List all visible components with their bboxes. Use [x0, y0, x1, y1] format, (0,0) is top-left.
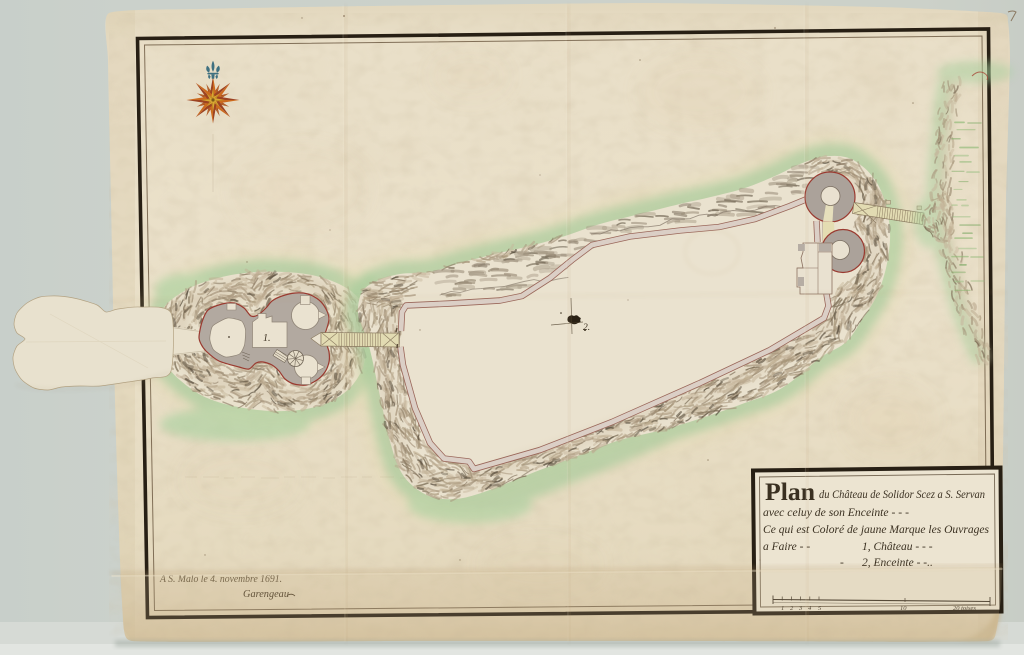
- svg-text:Ce qui est Coloré de jaune Mar: Ce qui est Coloré de jaune Marque les Ou…: [763, 524, 990, 536]
- svg-text:1, Château - - -: 1, Château - - -: [862, 541, 933, 553]
- svg-text:a Faire - -: a Faire - -: [763, 541, 810, 553]
- svg-text:du Château de Solidor Scez a S: du Château de Solidor Scez a S. Servan: [819, 489, 985, 501]
- svg-text:avec celuy de son Enceinte - -: avec celuy de son Enceinte - - -: [763, 507, 909, 519]
- svg-text:2.: 2.: [583, 323, 590, 333]
- svg-text:1.: 1.: [263, 333, 271, 344]
